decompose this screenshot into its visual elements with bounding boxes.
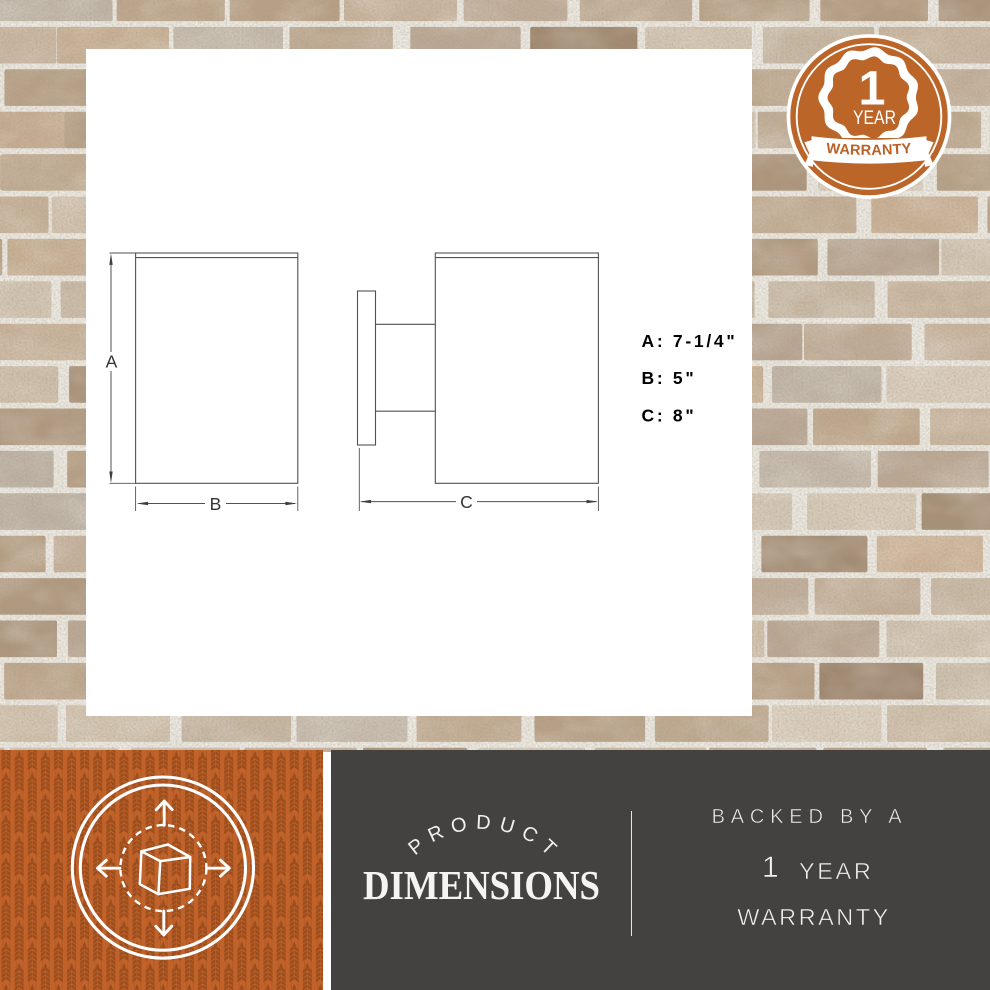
- svg-text:C: 8": C: 8": [642, 405, 697, 425]
- svg-text:A: 7-1/4": A: 7-1/4": [642, 331, 738, 351]
- svg-text:B: B: [210, 494, 222, 514]
- svg-text:B: 5": B: 5": [642, 368, 697, 388]
- svg-text:PRODUCT: PRODUCT: [404, 812, 566, 866]
- svg-text:C: C: [460, 492, 473, 512]
- svg-text:WARRANTY: WARRANTY: [826, 141, 913, 159]
- svg-text:DIMENSIONS: DIMENSIONS: [363, 862, 600, 908]
- svg-text:YEAR: YEAR: [853, 107, 896, 129]
- svg-text:A: A: [106, 352, 118, 372]
